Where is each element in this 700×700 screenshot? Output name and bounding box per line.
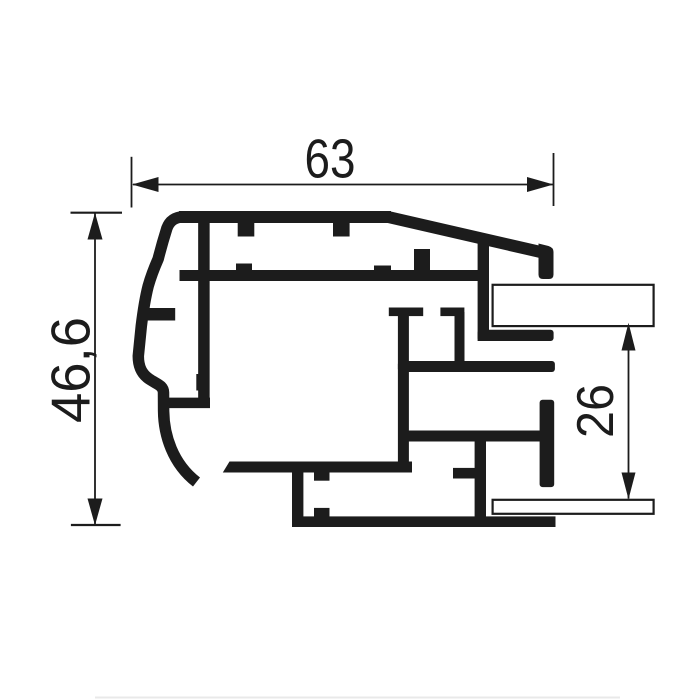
- svg-text:63: 63: [305, 128, 356, 190]
- svg-text:26: 26: [567, 384, 625, 438]
- svg-text:46,6: 46,6: [40, 317, 102, 423]
